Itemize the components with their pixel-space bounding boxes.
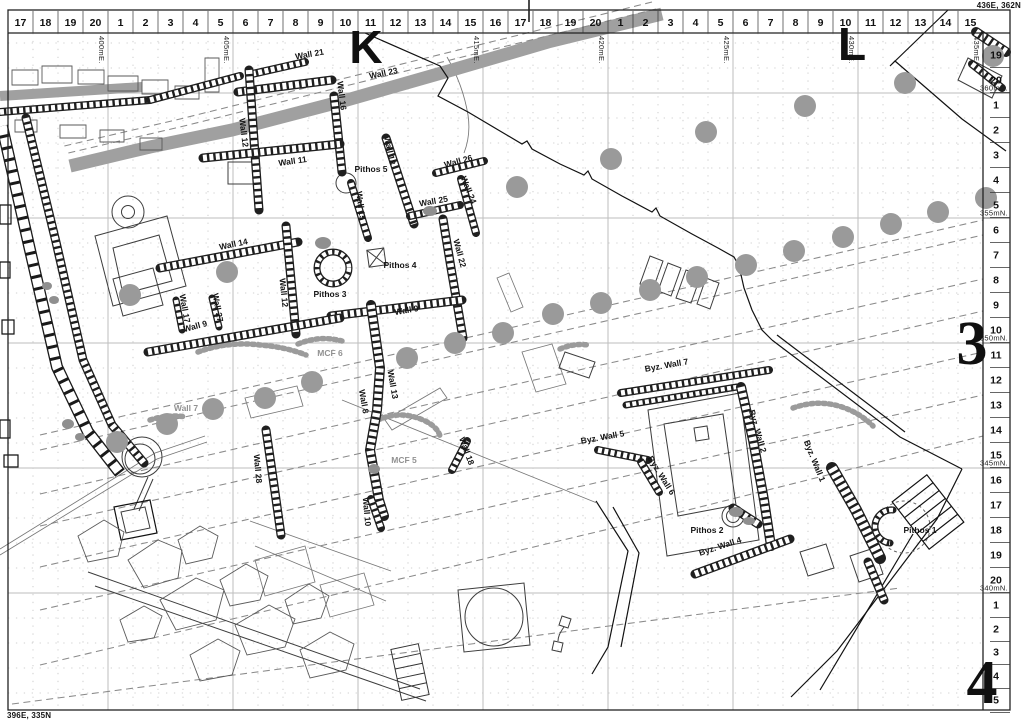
easting-label: 405mE. — [222, 36, 231, 64]
ruler-number: 4 — [193, 17, 199, 29]
tree-dot — [492, 322, 514, 344]
tree-dot — [880, 213, 902, 235]
ruler-number: 6 — [243, 17, 249, 29]
tree-dot — [927, 201, 949, 223]
ruler-number: 5 — [718, 17, 724, 29]
ruler-number: 9 — [993, 300, 999, 312]
wall-label: Wall 7 — [174, 403, 199, 413]
tree-dot — [735, 254, 757, 276]
ruler-number: 12 — [990, 375, 1002, 387]
easting-label: 400mE. — [97, 36, 106, 64]
tree-dot — [119, 284, 141, 306]
ruler-number: 1 — [118, 17, 124, 29]
ruler-number: 17 — [990, 500, 1002, 512]
tree-dot — [202, 398, 224, 420]
tree-dot — [600, 148, 622, 170]
tree-dot — [301, 371, 323, 393]
ruler-number: 17 — [15, 17, 27, 29]
ruler-number: 7 — [268, 17, 274, 29]
ruler-number: 1 — [993, 600, 999, 612]
northing-label: 345mN. — [980, 459, 1008, 468]
tree-dot — [894, 72, 916, 94]
tree-dot — [695, 121, 717, 143]
tree-dot — [396, 347, 418, 369]
ruler-number: 13 — [990, 400, 1002, 412]
tree-dot — [832, 226, 854, 248]
tree-dot — [444, 332, 466, 354]
ruler-number: 11 — [865, 17, 876, 29]
ruler-number: 19 — [65, 17, 77, 29]
tree-dot — [254, 387, 276, 409]
pithos-label: Pithos 3 — [313, 289, 346, 299]
corner-coordinate-bottom-left: 396E, 335N — [7, 711, 51, 720]
sheet-letter: L — [838, 18, 866, 70]
ruler-number: 8 — [793, 17, 799, 29]
easting-label: 415mE. — [472, 36, 481, 64]
ruler-number: 8 — [293, 17, 299, 29]
pithos-label: Pithos 4 — [383, 260, 416, 270]
tree-dot — [106, 431, 128, 453]
pithos-label: Pithos 5 — [354, 164, 387, 174]
ruler-number: 20 — [90, 17, 102, 29]
ruler-number: 18 — [40, 17, 52, 29]
ruler-number: 3 — [993, 150, 999, 162]
excavation-site-plan: 1718192012345678910111213141516171819201… — [0, 0, 1024, 721]
ruler-number: 2 — [993, 624, 999, 636]
tree-dot — [686, 266, 708, 288]
ruler-number: 14 — [440, 17, 452, 29]
northing-label: 340mN. — [980, 584, 1008, 593]
pithos-label: Pithos 1 — [903, 525, 936, 535]
ruler-number: 9 — [318, 17, 324, 29]
ruler-number: 18 — [540, 17, 552, 29]
ruler-number: 5 — [218, 17, 224, 29]
ruler-number: 19 — [990, 50, 1002, 62]
sheet-number: 4 — [967, 649, 998, 717]
ruler-number: 2 — [643, 17, 649, 29]
ruler-number: 14 — [940, 17, 952, 29]
ruler-number: 12 — [890, 17, 902, 29]
site-plan-drawing: 1718192012345678910111213141516171819201… — [0, 0, 1024, 721]
mcf-label: MCF 5 — [391, 455, 417, 465]
ruler-number: 12 — [390, 17, 402, 29]
tree-dot — [542, 303, 564, 325]
tree-dot — [783, 240, 805, 262]
ruler-number: 16 — [990, 475, 1002, 487]
ruler-number: 13 — [415, 17, 427, 29]
sheet-letter: K — [349, 21, 382, 73]
ruler-number: 7 — [993, 250, 999, 262]
ruler-number: 4 — [993, 175, 999, 187]
ruler-number: 15 — [965, 17, 977, 29]
ruler-number: 3 — [668, 17, 674, 29]
plan-background — [0, 0, 1024, 721]
mcf-label: MCF 6 — [317, 348, 343, 358]
ruler-number: 19 — [565, 17, 577, 29]
tree-dot — [156, 413, 178, 435]
ruler-number: 6 — [743, 17, 749, 29]
ruler-number: 8 — [993, 275, 999, 287]
ruler-number: 18 — [990, 525, 1002, 537]
ruler-number: 19 — [990, 550, 1002, 562]
tree-dot — [794, 95, 816, 117]
ruler-number: 3 — [168, 17, 174, 29]
ruler-number: 2 — [143, 17, 149, 29]
ruler-number: 1 — [993, 100, 999, 112]
corner-coordinate-top-right: 436E, 362N — [977, 1, 1021, 10]
ruler-number: 20 — [590, 17, 602, 29]
ruler-number: 2 — [993, 125, 999, 137]
northing-label: 355mN. — [980, 209, 1008, 218]
ruler-number: 13 — [915, 17, 927, 29]
tree-dot — [639, 279, 661, 301]
ruler-number: 4 — [693, 17, 699, 29]
ruler-number: 1 — [618, 17, 624, 29]
easting-label: 420mE. — [597, 36, 606, 64]
ruler-number: 9 — [818, 17, 824, 29]
ruler-number: 11 — [990, 350, 1001, 362]
easting-label: 425mE. — [722, 36, 731, 64]
ruler-number: 17 — [515, 17, 527, 29]
easting-label: 435mE. — [972, 36, 981, 64]
ruler-number: 7 — [768, 17, 774, 29]
tree-dot — [590, 292, 612, 314]
ruler-number: 15 — [465, 17, 477, 29]
ruler-number: 6 — [993, 225, 999, 237]
pithos-label: Pithos 2 — [690, 525, 723, 535]
ruler-number: 16 — [490, 17, 502, 29]
tree-dot — [506, 176, 528, 198]
ruler-number: 14 — [990, 425, 1002, 437]
northing-label: 360mN. — [980, 84, 1008, 93]
tree-dot — [216, 261, 238, 283]
sheet-number: 3 — [957, 310, 988, 378]
